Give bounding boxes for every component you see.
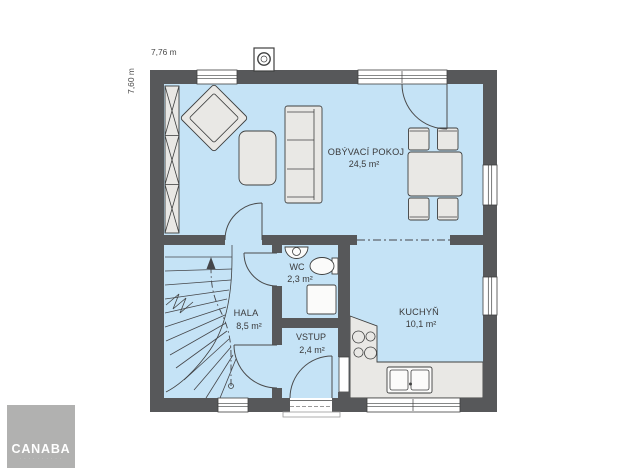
- hall-name: HALA: [234, 308, 259, 318]
- floor-plan-drawing: OBÝVACÍ POKOJ 24,5 m² KUCHYŇ 10,1 m² HAL…: [0, 0, 624, 468]
- dimension-height-label: 7,60 m: [126, 68, 136, 94]
- logo-tagline-text: · · · · · · · · · ·: [20, 457, 62, 461]
- coffee-table: [239, 131, 276, 185]
- window-right-kitchen: [483, 277, 497, 315]
- entry-name: VSTUP: [296, 332, 326, 342]
- toilet-icon: [310, 258, 338, 275]
- window-bottom-kitchen: [367, 398, 460, 412]
- window-top-left: [197, 70, 237, 84]
- wc-area: 2,3 m²: [287, 274, 313, 284]
- window-bottom-hall: [218, 398, 248, 412]
- kitchen-sink-icon: [387, 367, 432, 393]
- window-right-living: [483, 165, 497, 205]
- kitchen-name: KUCHYŇ: [399, 307, 439, 317]
- shower-icon: [307, 285, 336, 314]
- wardrobe-shelf: [165, 86, 179, 233]
- canaba-logo: CANABA · · · · · · · · · ·: [7, 405, 75, 468]
- logo-brand-text: CANABA: [12, 443, 71, 456]
- hall-area: 8,5 m²: [236, 321, 262, 331]
- wc-name: WC: [290, 262, 305, 272]
- chimney-icon: [254, 48, 274, 71]
- window-top-right: [358, 70, 447, 84]
- floor-plan-image: OBÝVACÍ POKOJ 24,5 m² KUCHYŇ 10,1 m² HAL…: [0, 0, 624, 468]
- sofa: [285, 106, 322, 203]
- dining-table: [408, 152, 462, 196]
- dimension-width-label: 7,76 m: [151, 47, 177, 57]
- living-room-area: 24,5 m²: [349, 159, 380, 169]
- living-room-name: OBÝVACÍ POKOJ: [328, 147, 404, 157]
- entry-area: 2,4 m²: [299, 345, 325, 355]
- kitchen-area: 10,1 m²: [406, 319, 437, 329]
